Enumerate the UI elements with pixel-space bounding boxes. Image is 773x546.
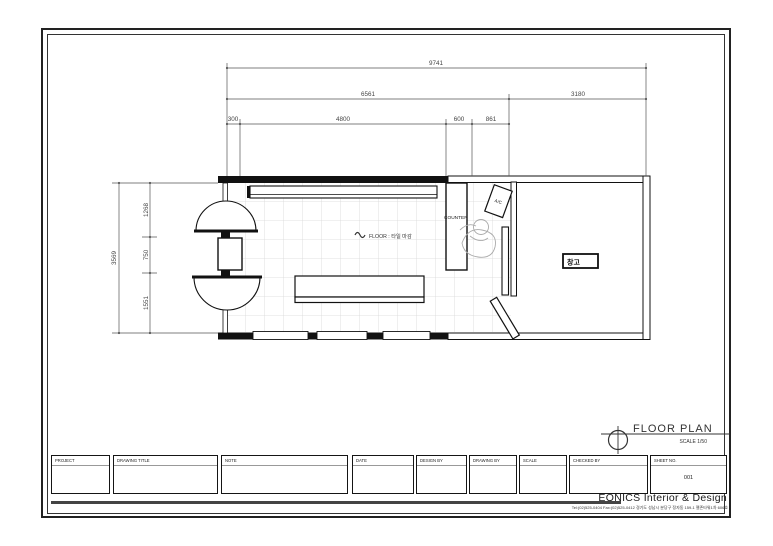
field-label: DRAWING BY [470, 456, 516, 466]
dim-seg-750: 750 [143, 249, 150, 260]
dim-seg-1551: 1551 [143, 296, 150, 311]
counter-label: COUNTER [444, 215, 468, 221]
left-dimensions: 3569 1268 750 1551 [111, 182, 218, 334]
wall-panel [502, 227, 509, 295]
drawing-scale-text: SCALE 1/50 [679, 439, 707, 445]
title-block-field-date: DATE [352, 455, 414, 494]
dim-overall-height: 3569 [111, 251, 118, 266]
storage-sign-label: 창고 [567, 258, 580, 267]
dim-seg-1268: 1268 [143, 203, 150, 218]
field-label: SHEET NO. [651, 456, 726, 466]
dim-detail-600: 600 [454, 116, 465, 123]
dim-detail-4800: 4800 [336, 116, 351, 123]
drawing-title-marker: FLOOR PLAN SCALE 1/50 [601, 423, 730, 454]
display-table [295, 276, 424, 297]
title-block-field-scale: SCALE [519, 455, 567, 494]
partition-wall [511, 182, 517, 296]
title-block-field-project: PROJECT [51, 455, 110, 494]
drawing-title-text: FLOOR PLAN [633, 423, 713, 435]
storage-sign: 창고 [563, 254, 598, 268]
title-block-field-sheet-no: SHEET NO. 001 [650, 455, 727, 494]
field-label: PROJECT [52, 456, 109, 466]
field-label: SCALE [520, 456, 566, 466]
field-label: DESIGN BY [417, 456, 466, 466]
window-2 [317, 332, 367, 340]
field-label: CHECKED BY [570, 456, 647, 466]
drawing-sheet: A/C 창고 FLOOR : 타일 마감 COUNTER [0, 0, 773, 546]
dim-detail-300: 300 [228, 116, 239, 123]
sheet-number: 001 [651, 475, 726, 481]
floor-finish-text: FLOOR : 타일 마감 [369, 232, 412, 240]
tile-floor-grid [227, 183, 511, 332]
wall-shelf [250, 186, 437, 198]
window-3 [383, 332, 430, 340]
window-1 [253, 332, 308, 340]
dim-left-span: 6561 [361, 91, 376, 98]
title-block-field-note: NOTE [221, 455, 348, 494]
field-label: DATE [353, 456, 413, 466]
top-dimensions: 9741 6561 3180 300 4800 600 861 [226, 60, 647, 176]
title-block-field-drawing-by: DRAWING BY [469, 455, 517, 494]
company-contact: Tel:(02)525-0404 Fax:(02)525-0412 경기도 성남… [340, 505, 728, 511]
dim-overall-width: 9741 [429, 60, 444, 67]
title-block-field-drawing-title: DRAWING TITLE [113, 455, 218, 494]
field-label: NOTE [222, 456, 347, 466]
title-block-field-design-by: DESIGN BY [416, 455, 467, 494]
field-label: DRAWING TITLE [114, 456, 217, 466]
entrance-center-panel [218, 238, 242, 270]
dim-right-span: 3180 [571, 91, 586, 98]
company-name: EONICS Interior & Design [500, 492, 727, 504]
title-block-field-checked-by: CHECKED BY [569, 455, 648, 494]
dim-detail-861: 861 [486, 116, 497, 123]
